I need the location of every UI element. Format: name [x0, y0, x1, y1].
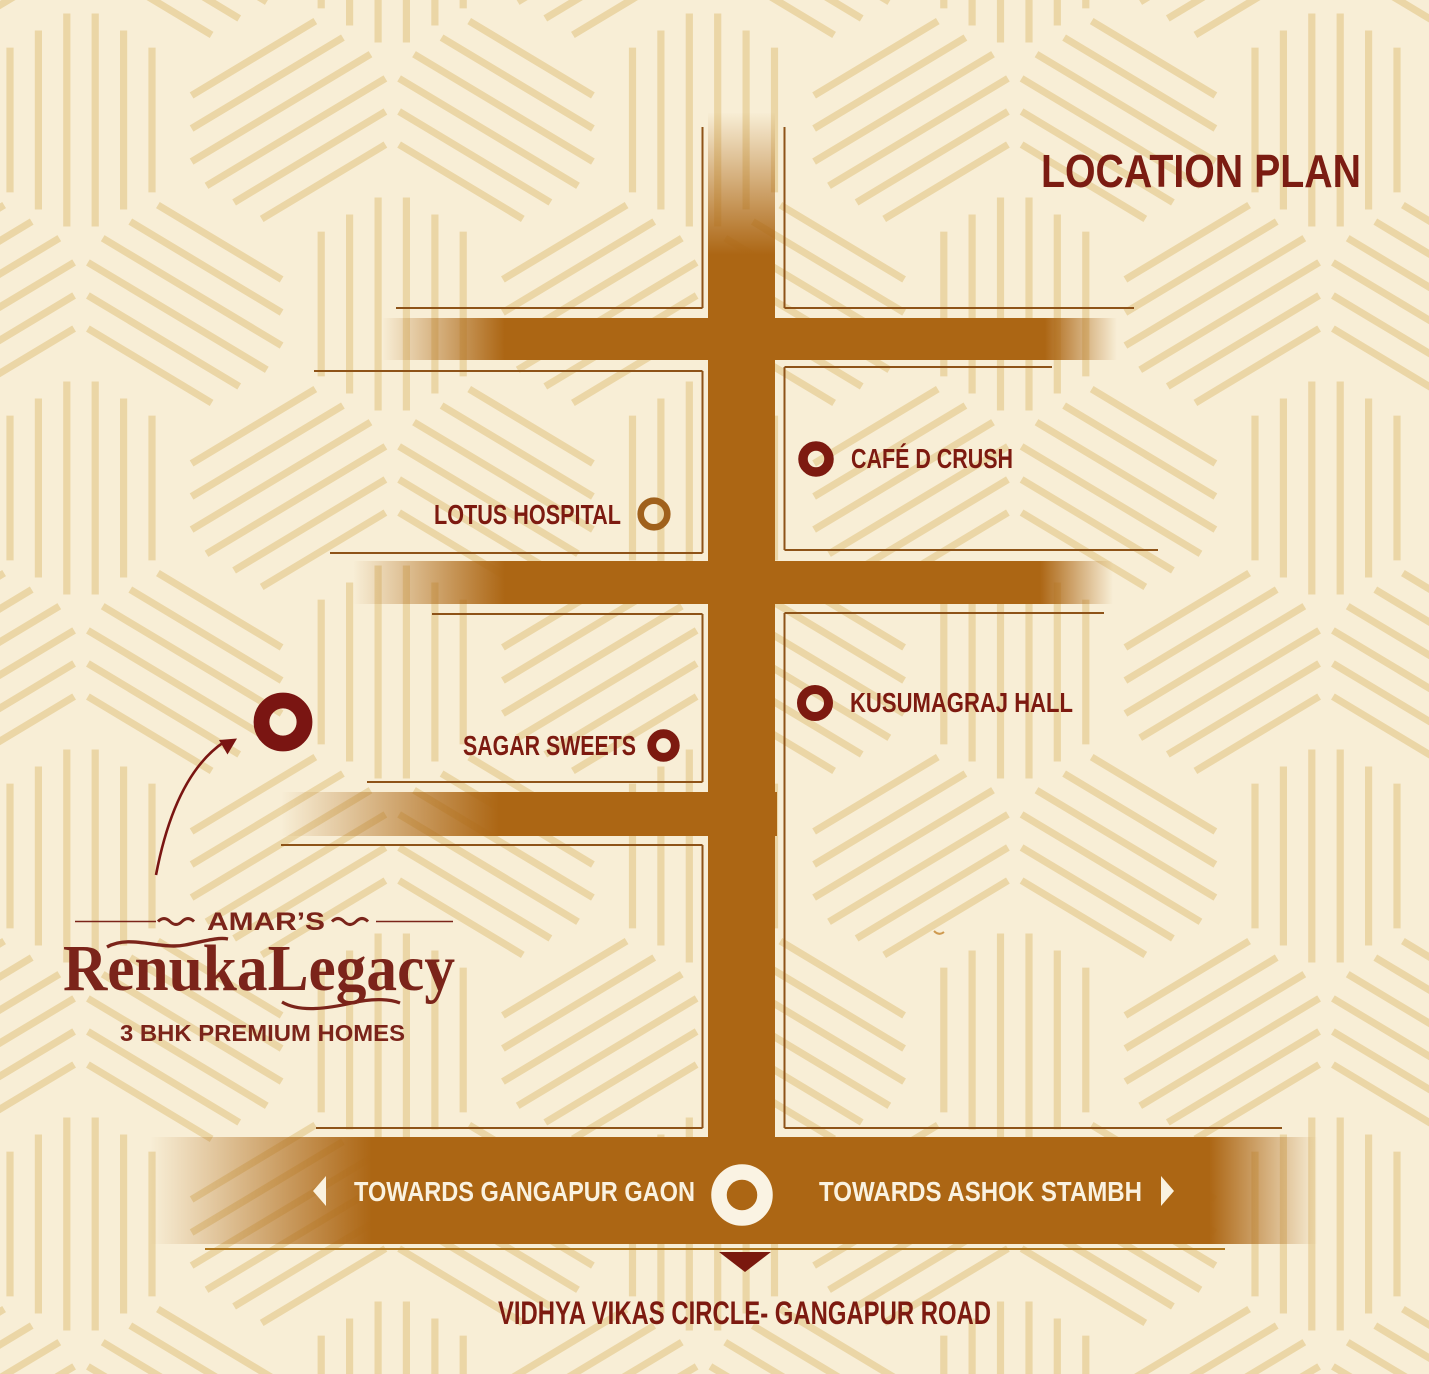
- svg-text:TOWARDS ASHOK STAMBH: TOWARDS ASHOK STAMBH: [819, 1176, 1142, 1207]
- svg-text:KUSUMAGRAJ HALL: KUSUMAGRAJ HALL: [850, 687, 1073, 718]
- svg-text:CAFÉ D CRUSH: CAFÉ D CRUSH: [851, 443, 1013, 474]
- svg-text:LOTUS HOSPITAL: LOTUS HOSPITAL: [434, 499, 621, 530]
- svg-text:VIDHYA VIKAS CIRCLE- GANGAPUR: VIDHYA VIKAS CIRCLE- GANGAPUR ROAD: [498, 1295, 991, 1331]
- svg-text:TOWARDS GANGAPUR GAON: TOWARDS GANGAPUR GAON: [354, 1176, 695, 1207]
- svg-text:SAGAR SWEETS: SAGAR SWEETS: [463, 730, 636, 761]
- svg-text:3 BHK PREMIUM HOMES: 3 BHK PREMIUM HOMES: [120, 1020, 405, 1046]
- svg-text:LOCATION PLAN: LOCATION PLAN: [1041, 145, 1361, 197]
